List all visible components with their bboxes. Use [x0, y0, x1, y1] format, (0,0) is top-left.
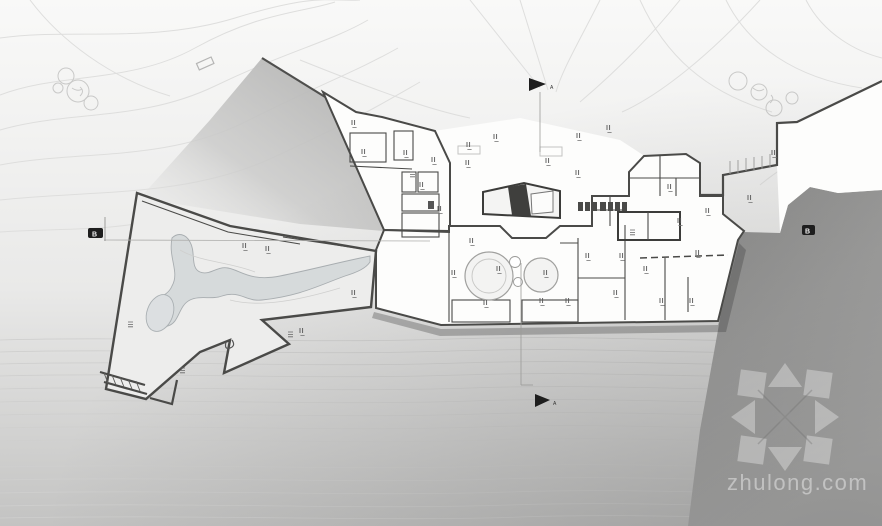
- plan-canvas: A A B B zhulong.com: [0, 0, 882, 526]
- fixture-row: [578, 202, 627, 211]
- section-label-b-left: B: [92, 232, 97, 239]
- section-label-b-right: B: [805, 229, 810, 236]
- watermark-text: zhulong.com: [727, 470, 868, 495]
- floor-plan-drawing: A A B B zhulong.com: [0, 0, 882, 526]
- zhulong-compass-logo-icon: [731, 363, 839, 471]
